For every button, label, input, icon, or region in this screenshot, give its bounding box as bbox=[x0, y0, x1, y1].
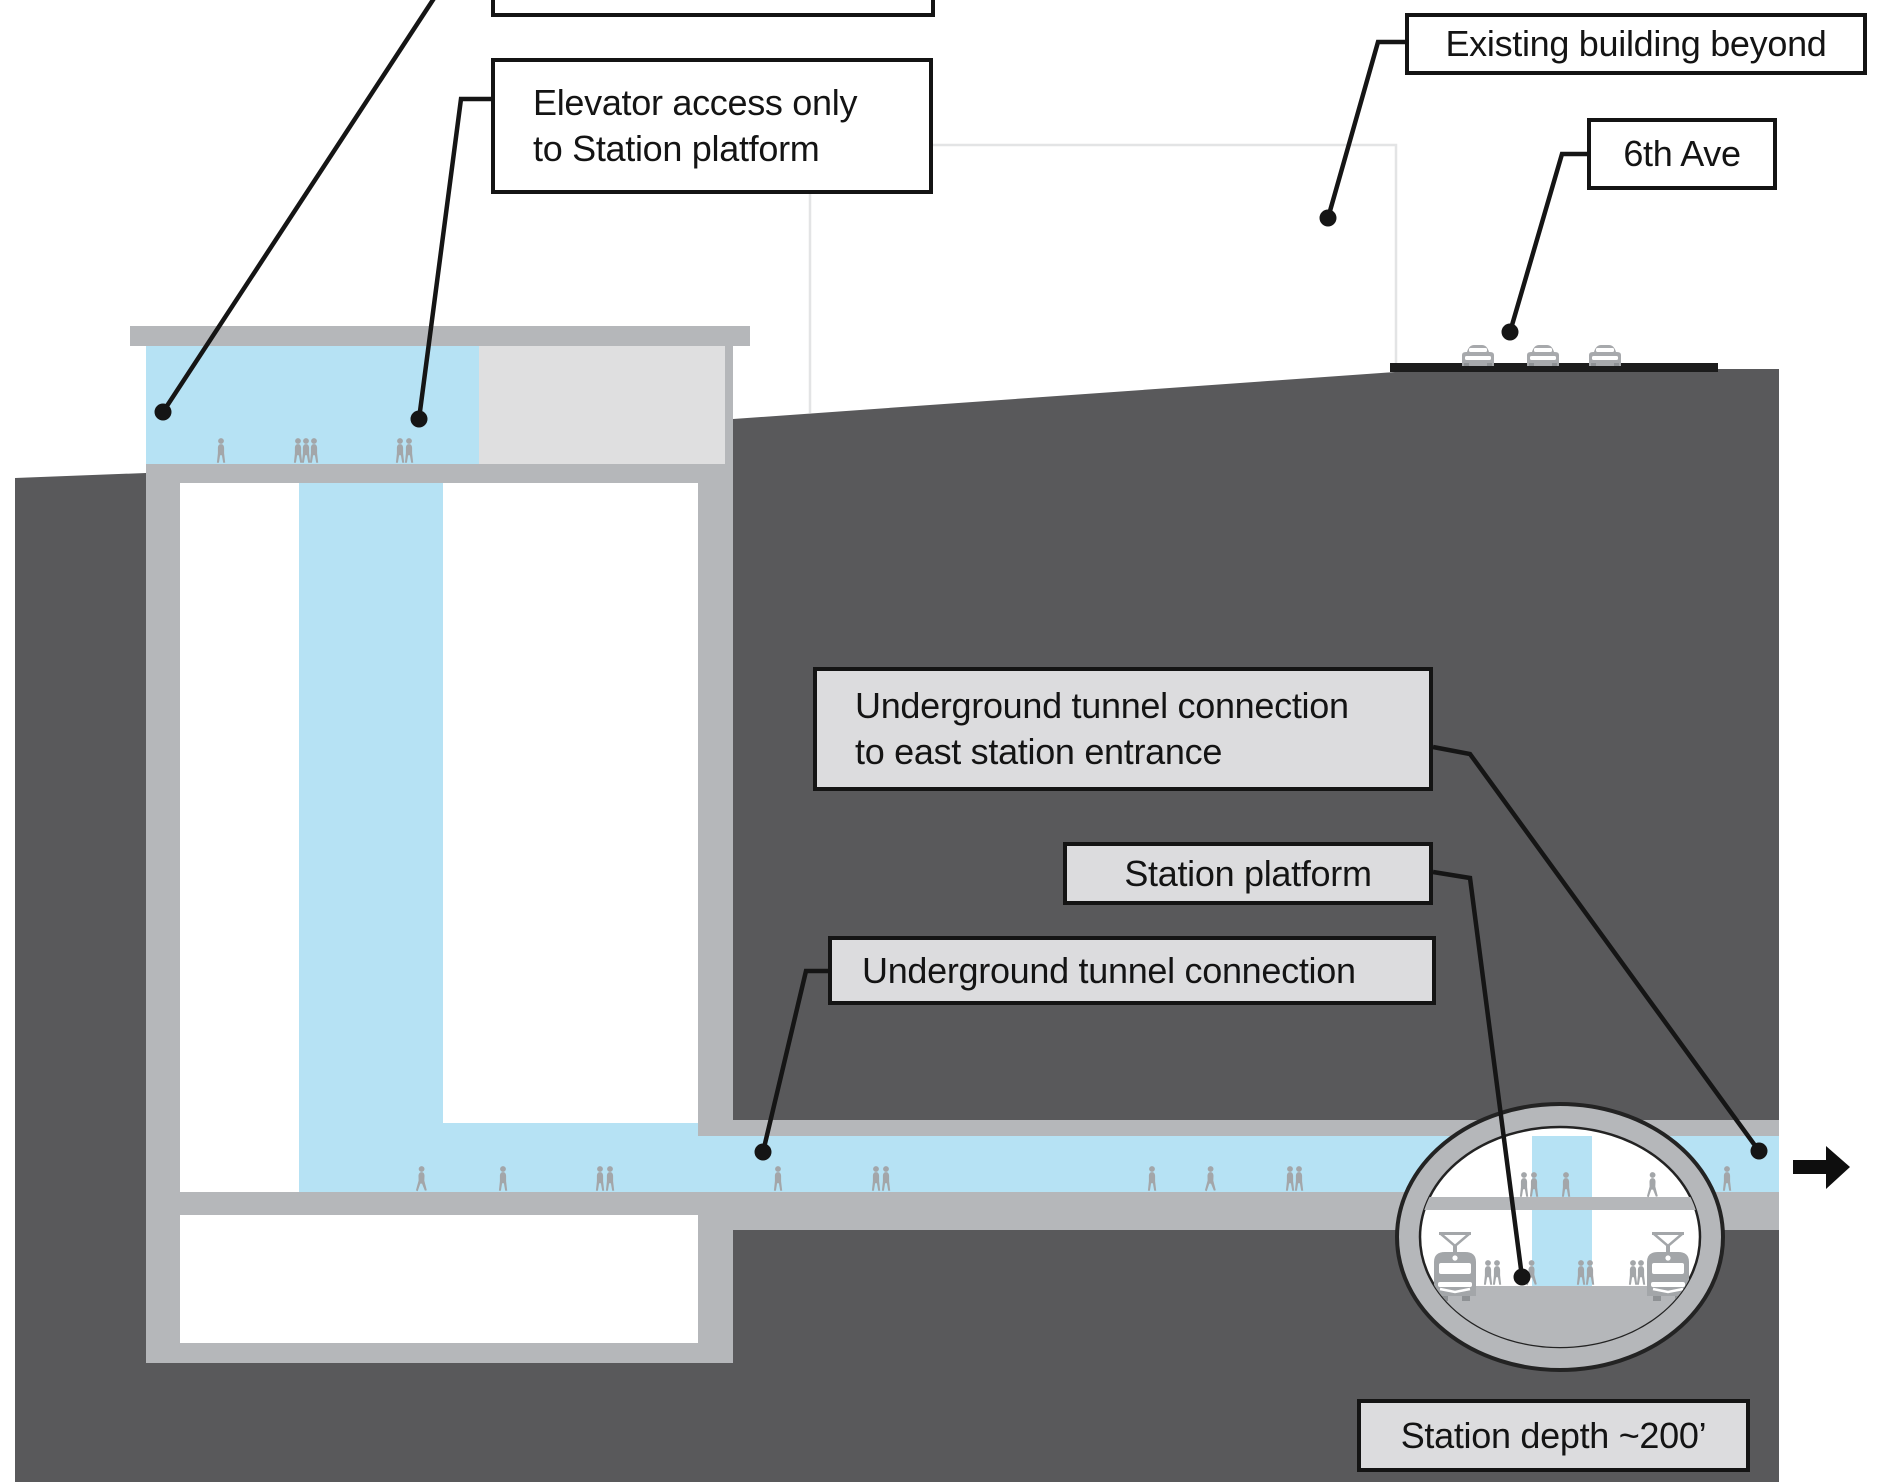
roof-slab bbox=[130, 326, 750, 346]
elevator-shaft bbox=[299, 483, 443, 1192]
tunnel-floor-inside bbox=[180, 1192, 733, 1215]
callout-label: Existing building beyond bbox=[1445, 21, 1826, 67]
leader-line bbox=[1510, 154, 1590, 332]
callout-top-cutoff bbox=[491, 0, 935, 17]
callout-label: 6th Ave bbox=[1623, 131, 1740, 177]
ground-mass-left bbox=[15, 473, 146, 1482]
callout-6th-ave: 6th Ave bbox=[1587, 118, 1777, 190]
entry-floor-slab bbox=[146, 464, 733, 483]
car-icon bbox=[1589, 345, 1621, 366]
platform-elevator-shaft bbox=[1532, 1136, 1592, 1288]
callout-label: Station depth ~200’ bbox=[1401, 1413, 1707, 1459]
callout-dot bbox=[1514, 1269, 1531, 1286]
callout-elevator-access: Elevator access only to Station platform bbox=[491, 58, 933, 194]
callout-label-line: to Station platform bbox=[533, 126, 819, 172]
entry-hall-gray bbox=[479, 346, 725, 464]
arrow-right-icon bbox=[1793, 1146, 1850, 1189]
callout-dot bbox=[155, 404, 172, 421]
car-icon bbox=[1527, 345, 1559, 366]
building-right-wall-lower bbox=[698, 1192, 733, 1363]
callout-dot bbox=[1751, 1143, 1768, 1160]
entry-hall-wall bbox=[725, 346, 733, 464]
callout-station-depth: Station depth ~200’ bbox=[1357, 1399, 1750, 1472]
callout-dot bbox=[411, 411, 428, 428]
callout-tunnel-east-entrance: Underground tunnel connection to east st… bbox=[813, 667, 1433, 791]
callout-dot bbox=[1502, 324, 1519, 341]
callout-underground-tunnel: Underground tunnel connection bbox=[828, 936, 1436, 1005]
callout-dot bbox=[1320, 210, 1337, 227]
building-right-wall-upper bbox=[698, 483, 733, 1136]
callout-dot bbox=[755, 1144, 772, 1161]
callout-label-line: Underground tunnel connection bbox=[855, 683, 1349, 729]
building-bottom-slab bbox=[146, 1343, 733, 1363]
station-headhouse bbox=[130, 326, 750, 1363]
callout-existing-building: Existing building beyond bbox=[1405, 13, 1867, 75]
station-section-diagram: Elevator access only to Station platform… bbox=[0, 0, 1880, 1482]
callout-station-platform: Station platform bbox=[1063, 842, 1433, 905]
callout-label-line: to east station entrance bbox=[855, 729, 1222, 775]
callout-label: Underground tunnel connection bbox=[862, 948, 1356, 994]
car-icon bbox=[1462, 345, 1494, 366]
callout-label-line: Elevator access only bbox=[533, 80, 857, 126]
mezzanine-walkway bbox=[1420, 1197, 1702, 1210]
callout-label: Station platform bbox=[1124, 851, 1371, 897]
building-left-wall bbox=[146, 464, 180, 1363]
tunnel-blue-inside bbox=[443, 1123, 698, 1192]
